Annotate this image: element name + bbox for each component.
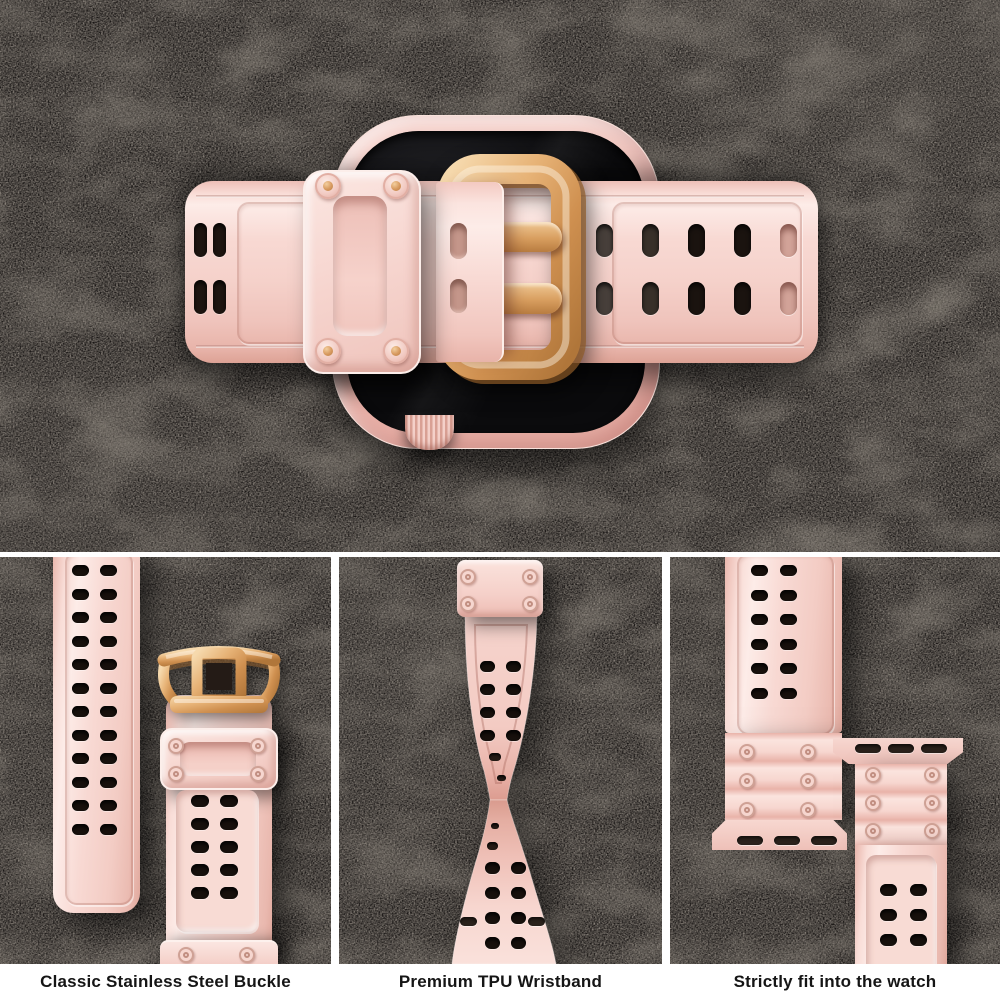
rivet — [865, 767, 881, 783]
strap-hole — [910, 909, 927, 921]
strap-hole — [100, 824, 117, 835]
strap-hole — [880, 909, 897, 921]
strap-hole — [506, 661, 521, 672]
strap-hole — [596, 224, 613, 257]
strap-hole — [506, 707, 521, 718]
strap-hole — [780, 282, 797, 315]
rivet — [865, 795, 881, 811]
strap-hole — [100, 636, 117, 647]
strap-hole — [491, 823, 499, 829]
strap-hole — [191, 795, 209, 807]
strap-hole — [642, 224, 659, 257]
caption-wristband: Premium TPU Wristband — [339, 964, 662, 1000]
lug-connector — [712, 820, 847, 850]
strap-hole — [220, 864, 238, 876]
strap-hole — [194, 280, 207, 314]
strap-hole — [72, 636, 89, 647]
band-holes-left — [194, 223, 226, 314]
strap-end-overlay — [436, 182, 504, 362]
strap-hole — [511, 862, 526, 874]
caption-buckle: Classic Stainless Steel Buckle — [0, 964, 331, 1000]
strap-end-hole — [450, 223, 467, 259]
strap-hole — [780, 614, 797, 625]
strap-holes — [751, 565, 797, 699]
strap-holes — [485, 862, 526, 949]
strap-hole — [220, 818, 238, 830]
strap-hole — [642, 282, 659, 315]
strap-hole — [485, 887, 500, 899]
strap-hole — [487, 842, 498, 850]
connector-slot — [888, 744, 914, 753]
strap-hole — [72, 659, 89, 670]
strap-hole — [100, 777, 117, 788]
rivet — [800, 744, 816, 760]
strap-hole — [880, 934, 897, 946]
strap-hole — [194, 223, 207, 257]
rivet — [178, 947, 194, 963]
connector-slot — [737, 836, 763, 845]
panel-wristband-photo — [339, 557, 662, 964]
strap-hole — [485, 912, 500, 924]
rivet — [239, 947, 255, 963]
rivet — [522, 569, 538, 585]
rivet — [924, 795, 940, 811]
keeper-rivet — [168, 738, 184, 754]
strap-hole — [191, 864, 209, 876]
strap-hole — [100, 683, 117, 694]
band-holes-right — [596, 224, 797, 315]
strap-hole — [72, 800, 89, 811]
strap-hole — [480, 661, 495, 672]
strap-hole — [506, 730, 521, 741]
lug-connector — [833, 738, 963, 764]
panel-fit-photo — [670, 557, 1000, 964]
strap-hole — [688, 224, 705, 257]
keeper-rivet — [250, 766, 266, 782]
strap-hole — [100, 706, 117, 717]
strap-hole — [751, 688, 768, 699]
strap-hole — [688, 282, 705, 315]
strap-hole — [72, 565, 89, 576]
keeper-rivet — [315, 338, 341, 364]
rivet — [865, 823, 881, 839]
strap-hole — [72, 612, 89, 623]
rivet — [739, 744, 755, 760]
strap-hole — [191, 887, 209, 899]
strap-hole — [72, 706, 89, 717]
connector-slot — [811, 836, 837, 845]
panel-buckle-photo — [0, 557, 331, 964]
strap-hole — [780, 565, 797, 576]
keeper-rivet — [383, 338, 409, 364]
strap-hole — [72, 753, 89, 764]
keeper-rivet — [168, 766, 184, 782]
rivet — [800, 773, 816, 789]
keeper-rivet — [383, 173, 409, 199]
strap-hole — [72, 589, 89, 600]
strap-holes — [480, 661, 521, 741]
rivet — [460, 569, 476, 585]
strap-hole — [751, 565, 768, 576]
strap-hole — [485, 862, 500, 874]
strap-hole — [511, 887, 526, 899]
strap-end-hole — [450, 279, 467, 313]
strap-hole — [213, 280, 226, 314]
rivet — [924, 823, 940, 839]
strap-hole — [100, 800, 117, 811]
strap-hole — [100, 565, 117, 576]
rivet — [739, 802, 755, 818]
strap-holes — [880, 884, 927, 946]
strap-hole — [213, 223, 226, 257]
strap-hole — [100, 589, 117, 600]
rivet — [522, 596, 538, 612]
strap-hole — [751, 639, 768, 650]
strap-hole — [497, 775, 506, 781]
rivet — [924, 767, 940, 783]
strap-hole — [72, 824, 89, 835]
strap-hole — [191, 841, 209, 853]
connector-slot — [855, 744, 881, 753]
strap-hole — [780, 688, 797, 699]
strap-hole — [780, 639, 797, 650]
strap-hole — [72, 730, 89, 741]
strap-hole — [880, 884, 897, 896]
keeper-rivet — [315, 173, 341, 199]
strap-hole — [100, 659, 117, 670]
strap-hole — [734, 224, 751, 257]
strap-hole — [511, 937, 526, 949]
keeper-window — [180, 742, 256, 776]
caption-fit: Strictly fit into the watch — [670, 964, 1000, 1000]
strap-hole — [220, 841, 238, 853]
strap-hole — [100, 730, 117, 741]
strap-notch — [528, 917, 545, 926]
hero-photo — [0, 0, 1000, 552]
strap-hole — [506, 684, 521, 695]
strap-hole — [780, 224, 797, 257]
rivet — [460, 596, 476, 612]
keeper-window — [333, 196, 387, 336]
strap-hole — [780, 590, 797, 601]
strap-hole — [72, 777, 89, 788]
strap-hole — [100, 612, 117, 623]
rivet — [739, 773, 755, 789]
digital-crown — [405, 415, 454, 450]
strap-holes — [191, 795, 238, 899]
strap-hole — [910, 934, 927, 946]
strap-hole — [191, 818, 209, 830]
strap-hole — [596, 282, 613, 315]
connector-slot — [774, 836, 800, 845]
rivet — [800, 802, 816, 818]
strap-notch — [460, 917, 477, 926]
product-collage: Classic Stainless Steel Buckle Premium T… — [0, 0, 1000, 1000]
connector-slot — [921, 744, 947, 753]
strap-hole — [780, 663, 797, 674]
strap-hole — [751, 614, 768, 625]
strap-hole — [751, 590, 768, 601]
strap-hole — [485, 937, 500, 949]
strap-hole — [100, 753, 117, 764]
strap-hole — [480, 707, 495, 718]
strap-hole — [734, 282, 751, 315]
strap-hole — [220, 887, 238, 899]
strap-hole — [489, 753, 501, 761]
strap-hole — [910, 884, 927, 896]
strap-hole — [751, 663, 768, 674]
buckle — [156, 643, 282, 721]
strap-hole — [480, 684, 495, 695]
keeper-rivet — [250, 738, 266, 754]
strap-hole — [220, 795, 238, 807]
strap-hole — [480, 730, 495, 741]
strap-hole — [511, 912, 526, 924]
strap-hole — [72, 683, 89, 694]
strap-holes — [72, 565, 117, 835]
